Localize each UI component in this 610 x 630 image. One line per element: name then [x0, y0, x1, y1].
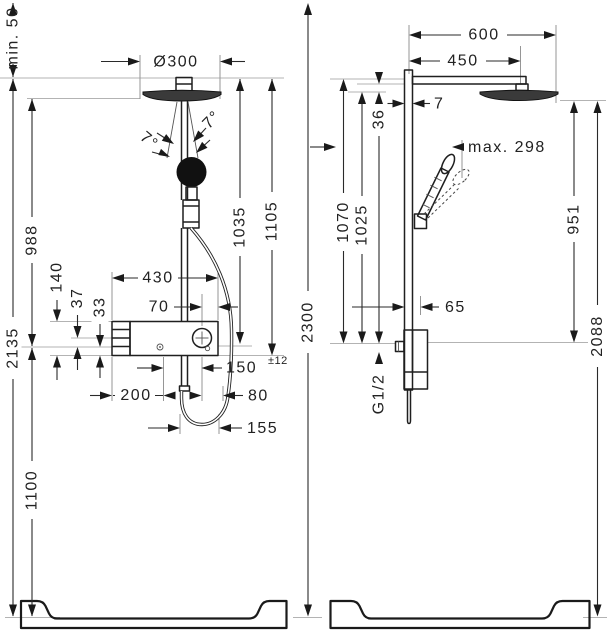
- dim-label-150-tolerance: ±12: [268, 355, 288, 367]
- shower-tray-front: [21, 601, 287, 628]
- wall-bracket-side: [396, 330, 428, 389]
- dim-label-33: 33: [92, 297, 109, 318]
- dim-label-80: 80: [248, 388, 269, 405]
- dim-label-2135: 2135: [5, 327, 22, 369]
- dim-label-155: 155: [247, 420, 278, 437]
- dimension-labels: min. 50 Ø300 7° 7° 988 2135 1100 140 37 …: [5, 7, 607, 511]
- dim-label-150: 150: [226, 360, 257, 377]
- dim-label-70: 70: [149, 299, 170, 316]
- dim-label-max-reach: max. 298: [468, 139, 546, 156]
- dim-label-2300: 2300: [300, 301, 317, 343]
- dim-label-min-clearance: min. 50: [5, 7, 22, 70]
- dim-label-140: 140: [49, 261, 66, 292]
- shower-installation-diagram: min. 50 Ø300 7° 7° 988 2135 1100 140 37 …: [0, 0, 610, 630]
- technical-drawing-page: min. 50 Ø300 7° 7° 988 2135 1100 140 37 …: [0, 0, 610, 630]
- dim-label-angle-left: 7°: [137, 129, 162, 154]
- dim-label-1035: 1035: [232, 206, 249, 248]
- dim-label-36: 36: [371, 109, 388, 130]
- dim-label-1100: 1100: [24, 470, 41, 510]
- shower-hose-front: [182, 228, 232, 425]
- dim-label-1105: 1105: [264, 201, 281, 241]
- dim-label-head-diameter: Ø300: [153, 54, 198, 71]
- dim-label-angle-right: 7°: [200, 108, 225, 133]
- dim-label-200: 200: [120, 387, 151, 404]
- dim-label-7: 7: [434, 96, 444, 113]
- arm-joint-side: [516, 84, 528, 91]
- dim-label-1070: 1070: [335, 201, 352, 243]
- dim-label-951: 951: [566, 203, 583, 234]
- side-view: [331, 70, 590, 628]
- dim-label-600: 600: [468, 27, 499, 44]
- hand-shower-head-front: [177, 157, 207, 187]
- dim-label-2088: 2088: [589, 315, 606, 357]
- dim-label-430: 430: [142, 270, 173, 287]
- dim-label-37: 37: [69, 288, 86, 309]
- dim-label-1025: 1025: [354, 204, 371, 246]
- shower-pipe-front: [180, 101, 190, 391]
- shower-tray-side: [331, 601, 590, 628]
- dim-label-thread: G1/2: [371, 374, 388, 415]
- wall-bar-side: [405, 70, 413, 390]
- hose-end-side: [408, 389, 411, 424]
- thermostat-valve: [112, 322, 218, 356]
- shower-arm-side: [413, 77, 527, 85]
- g-half-connection: [396, 342, 405, 352]
- overhead-shower-side: [480, 90, 558, 100]
- dim-label-450: 450: [447, 53, 478, 70]
- dim-label-988: 988: [24, 224, 41, 255]
- hand-shower-side: [415, 152, 472, 228]
- front-view: [21, 78, 287, 629]
- dim-label-65: 65: [445, 299, 466, 316]
- extension-lines: [112, 25, 556, 434]
